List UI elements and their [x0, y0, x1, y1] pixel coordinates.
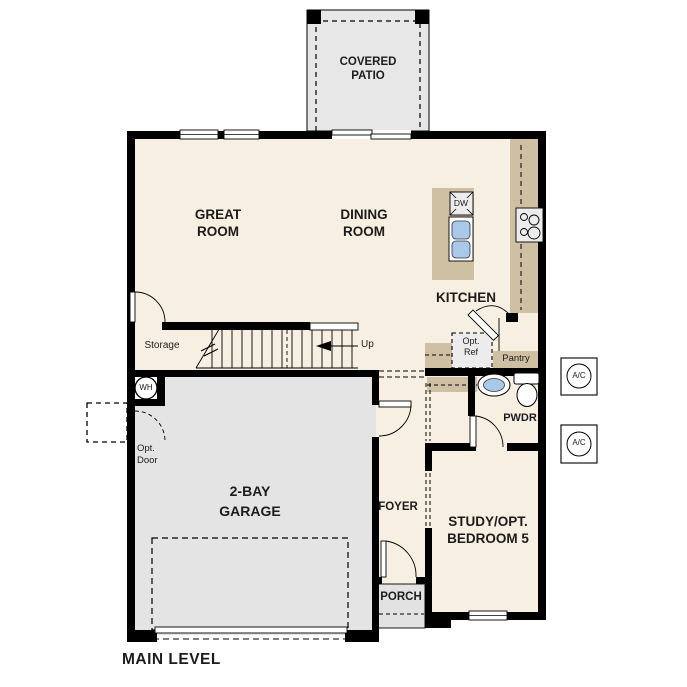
kitchen-label: KITCHEN: [436, 289, 496, 306]
plan-title: MAIN LEVEL: [122, 650, 221, 669]
wall-storage-top: [162, 322, 310, 330]
great-room-label: GREATROOM: [195, 206, 241, 240]
garage-entry-door-leaf: [379, 401, 411, 407]
wall-garage-right-lower: [372, 437, 379, 642]
wall-garage-bottom-left: [127, 630, 157, 642]
powder-label: PWDR: [503, 412, 537, 426]
pantry-label: Pantry: [502, 353, 529, 365]
wall-front-door-left: [372, 577, 382, 584]
wall-garage-bottom-right: [345, 630, 376, 642]
floor-plan-drawing: [0, 0, 687, 687]
study-label: STUDY/OPT.BEDROOM 5: [447, 513, 529, 547]
garage-door: [155, 627, 347, 633]
covered-patio-label: COVEREDPATIO: [340, 55, 397, 84]
wall-pantry-corner: [506, 313, 518, 322]
patio-post-left: [307, 10, 321, 24]
dishwasher-label: DW: [453, 198, 469, 209]
wall-left: [127, 131, 135, 642]
ac-label-1: A/C: [572, 371, 585, 381]
island-sink-bowl-1: [452, 221, 470, 239]
stair-railing: [310, 323, 358, 330]
wall-study-left-lower: [425, 528, 432, 584]
toilet-tank-icon: [514, 373, 539, 384]
foyer-label: FOYER: [378, 500, 418, 514]
garage-label: 2-BAYGARAGE: [219, 481, 280, 521]
wall-garage-right-upper: [372, 370, 379, 405]
optional-door-landing: [87, 403, 127, 442]
storage-door-leaf: [130, 292, 135, 322]
patio-post-right: [415, 10, 429, 24]
wall-study-top-right: [507, 443, 546, 451]
wall-powder-west: [468, 376, 475, 416]
toilet-bowl-icon: [517, 384, 537, 407]
up-label: Up: [361, 339, 374, 352]
ac-label-2: A/C: [572, 438, 585, 448]
island-sink-bowl-2: [452, 241, 470, 258]
porch-label: PORCH: [380, 590, 422, 604]
floor-plan: COVEREDPATIO GREATROOM DININGROOM KITCHE…: [0, 0, 687, 687]
front-door-leaf: [381, 541, 386, 577]
wall-wh-nook-bottom: [135, 399, 165, 406]
wall-study-top-left: [425, 443, 476, 451]
water-heater-label: WH: [139, 383, 152, 393]
wall-porch-right: [425, 584, 432, 614]
opt-door-label: Opt.Door: [137, 443, 158, 466]
dining-room-label: DININGROOM: [340, 206, 387, 240]
sliding-door-panel-2: [371, 134, 411, 139]
sliding-door-panel-1: [332, 130, 372, 135]
study-floor: [425, 372, 542, 616]
opt-ref-label: Opt.Ref: [462, 336, 479, 358]
powder-door-leaf: [470, 416, 476, 447]
storage-label: Storage: [144, 340, 179, 353]
